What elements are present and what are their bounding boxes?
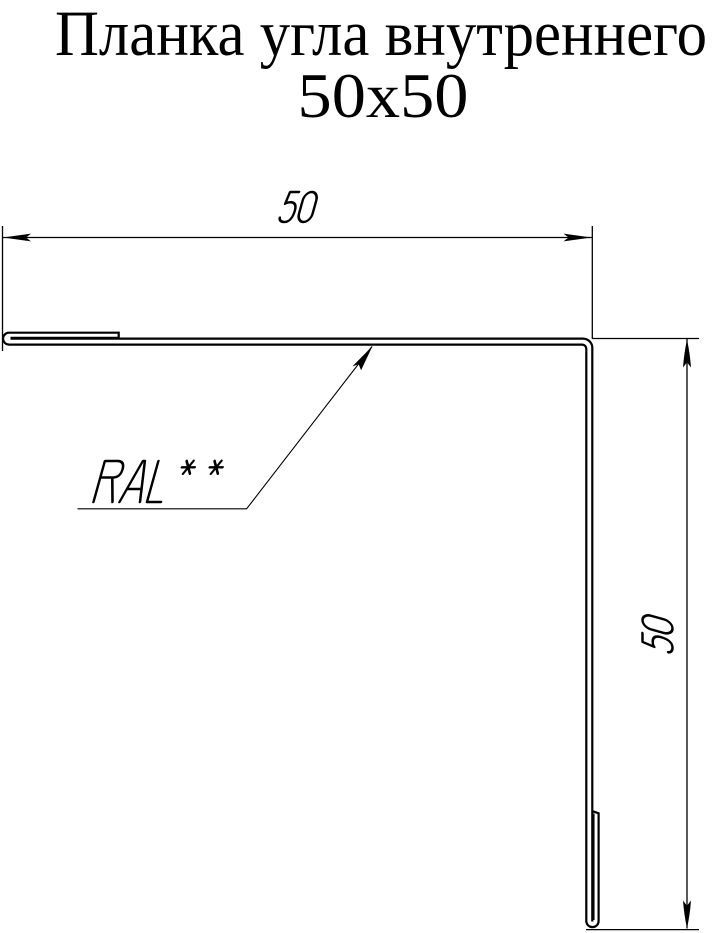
svg-text:50x50: 50x50 <box>298 60 469 131</box>
